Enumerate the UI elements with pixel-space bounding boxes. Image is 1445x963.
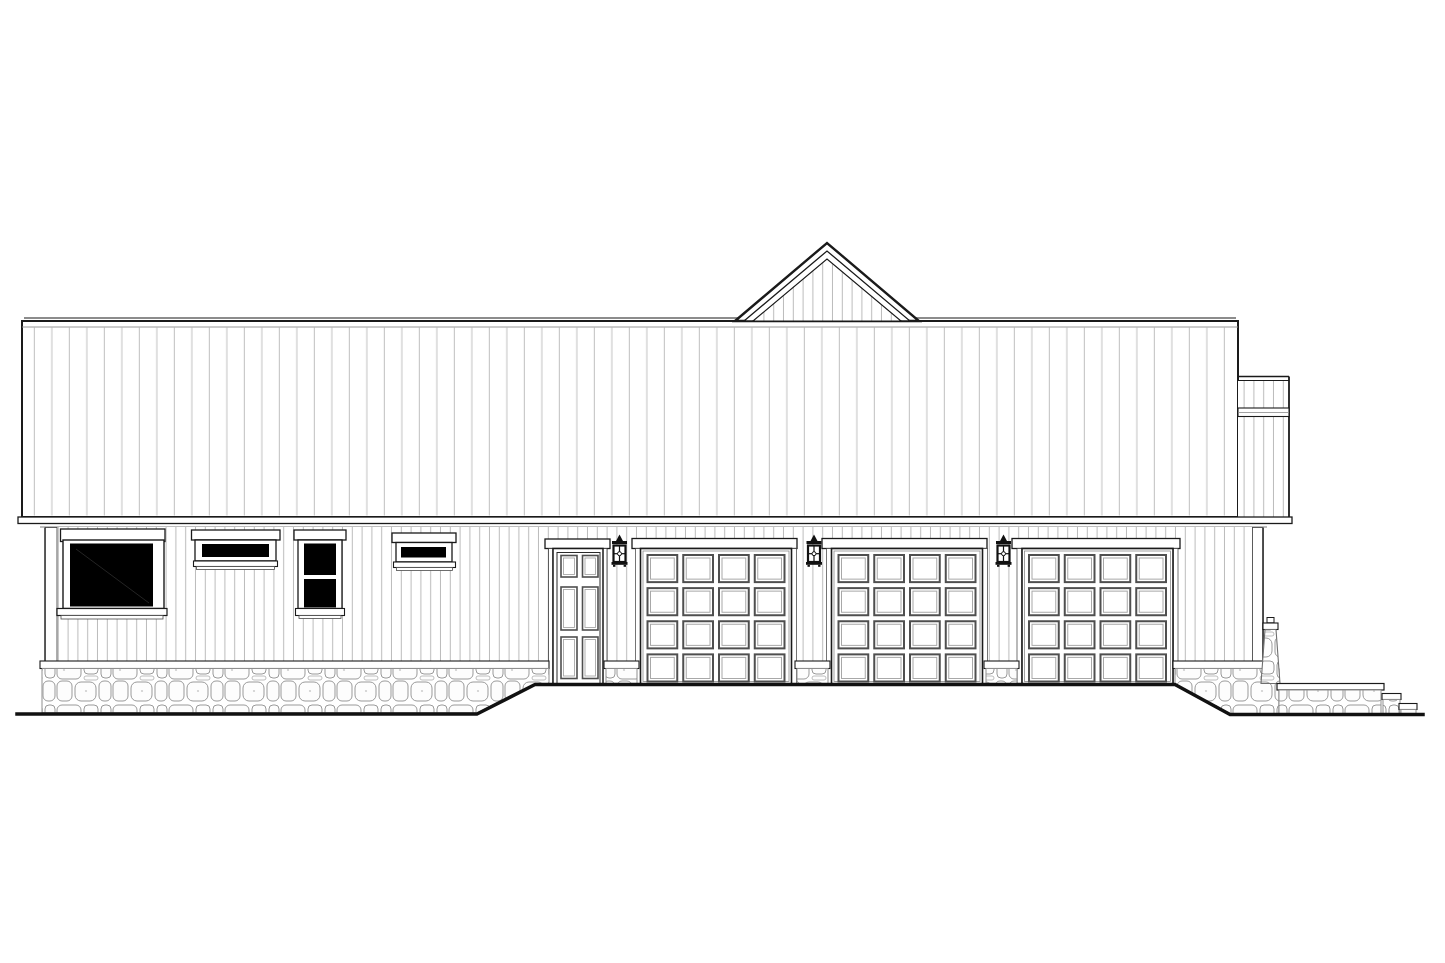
garage-panel: [719, 588, 749, 615]
window-header: [392, 533, 456, 543]
garage-panel: [719, 654, 749, 681]
garage-panel: [1065, 555, 1095, 582]
garage-panel: [910, 621, 940, 648]
knee-wall-stone: [1279, 690, 1381, 714]
garage-panel: [719, 555, 749, 582]
garage-panel: [755, 555, 785, 582]
garage-panel: [1029, 654, 1059, 681]
garage-panel: [755, 654, 785, 681]
elevation-drawing: [0, 0, 1445, 963]
garage-panel: [683, 621, 713, 648]
garage-panel: [1029, 588, 1059, 615]
window-header: [192, 530, 281, 540]
garage-panel: [1065, 654, 1095, 681]
fascia-band: [18, 517, 1292, 524]
garage-panel: [1029, 555, 1059, 582]
garage-panel: [1101, 555, 1131, 582]
window-sill-lip: [197, 567, 275, 570]
garage-doors: [632, 539, 1180, 685]
gable-peak: [735, 243, 919, 321]
pillar-finial: [1267, 618, 1274, 624]
garage-door-2: [822, 539, 988, 685]
stone-cap-band: [1173, 661, 1273, 669]
stone-veneer-left: [42, 669, 549, 714]
garage-panel: [1101, 654, 1131, 681]
stone-pillar-shaft: [1261, 630, 1280, 684]
picture-window: [57, 529, 167, 619]
garage-panel: [719, 621, 749, 648]
garage-panel: [683, 555, 713, 582]
garage-panel: [1136, 588, 1166, 615]
garage-header: [1012, 539, 1180, 549]
garage-panel: [874, 588, 904, 615]
stone-cap-band: [984, 661, 1019, 669]
garage-panel: [1136, 621, 1166, 648]
garage-panel: [839, 621, 869, 648]
eave-fascia: [18, 517, 1292, 527]
garage-panel: [910, 555, 940, 582]
garage-panel: [839, 654, 869, 681]
stone-cap-band: [795, 661, 830, 669]
left-corner-board: [46, 528, 58, 662]
window-sill: [296, 609, 345, 616]
garage-panel: [839, 588, 869, 615]
stone-cap-band: [40, 661, 549, 669]
window-header: [294, 530, 346, 540]
window-sill: [194, 561, 278, 567]
garage-panel: [755, 621, 785, 648]
window-glass: [401, 547, 446, 558]
garage-panel: [946, 621, 976, 648]
garage-door-1: [632, 539, 797, 685]
garage-door-3: [1012, 539, 1180, 685]
lower-sash-glass: [304, 579, 336, 608]
garage-panel: [1101, 588, 1131, 615]
stone-cap-band: [604, 661, 639, 669]
garage-panel: [648, 588, 678, 615]
garage-panel: [910, 654, 940, 681]
window-sill: [57, 609, 167, 616]
garage-panel: [946, 588, 976, 615]
garage-header: [822, 539, 987, 549]
garage-panel: [946, 654, 976, 681]
garage-panel: [874, 654, 904, 681]
garage-header: [632, 539, 797, 549]
garage-panel: [1101, 621, 1131, 648]
garage-panel: [1029, 621, 1059, 648]
garage-panel: [839, 555, 869, 582]
garage-panel: [683, 654, 713, 681]
stone-stair-wall: [1261, 618, 1417, 715]
step-cap-lower: [1399, 704, 1417, 710]
garage-panel: [874, 621, 904, 648]
stone-veneer-pier: [606, 669, 637, 685]
right-shed-roof-section: [1238, 377, 1289, 519]
window-sill: [394, 562, 456, 568]
window-sill-lip: [61, 616, 163, 620]
garage-panel: [1136, 555, 1166, 582]
garage-panel: [755, 588, 785, 615]
small-transom-window: [392, 533, 456, 571]
step-stone-upper: [1383, 700, 1400, 714]
garage-panel: [874, 555, 904, 582]
window-sill-lip: [397, 568, 453, 571]
door-header: [545, 539, 610, 549]
entry-door: [545, 539, 610, 685]
garage-panel: [910, 588, 940, 615]
garage-panel: [648, 621, 678, 648]
knee-wall-cap: [1277, 684, 1384, 691]
roof-seams: [28, 328, 1232, 516]
elevation-svg: [0, 0, 1445, 963]
stone-veneer-pier: [797, 669, 828, 685]
transom-window: [192, 530, 281, 570]
main-roof: [22, 318, 1238, 517]
garage-panel: [648, 555, 678, 582]
step-cap-upper: [1382, 694, 1401, 700]
window-sill-lip: [299, 616, 341, 619]
garage-panel: [648, 654, 678, 681]
pillar-cap: [1263, 623, 1278, 630]
garage-panel: [1065, 588, 1095, 615]
shed-siding: [1238, 380, 1289, 518]
double-hung-window: [294, 530, 346, 619]
garage-panel: [946, 555, 976, 582]
garage-panel: [683, 588, 713, 615]
stone-veneer-pier: [986, 669, 1017, 685]
right-corner-board: [1253, 528, 1263, 669]
window-glass: [202, 544, 269, 557]
garage-panel: [1065, 621, 1095, 648]
garage-panel: [1136, 654, 1166, 681]
upper-sash-glass: [304, 544, 336, 576]
